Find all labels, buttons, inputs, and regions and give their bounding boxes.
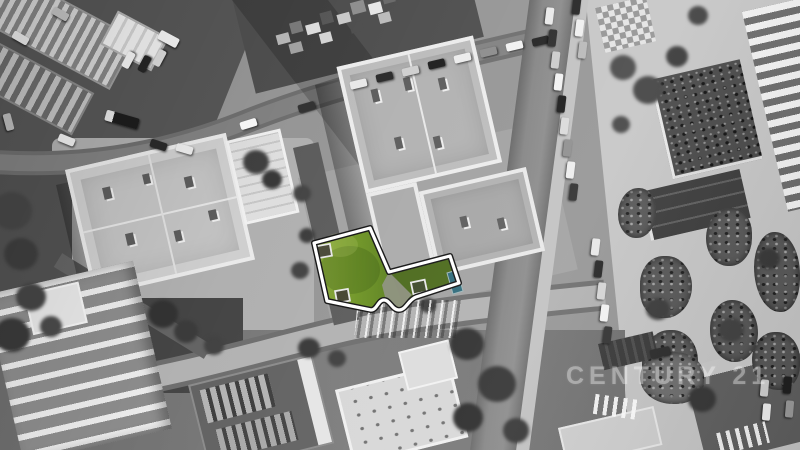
aerial-photo: CENTURY 21 (0, 0, 800, 450)
roof-vent (497, 217, 506, 229)
tree (16, 283, 46, 311)
roof-ridge-line (148, 155, 177, 274)
roof-vent (433, 136, 443, 149)
tree (293, 185, 311, 202)
tree (40, 316, 62, 337)
tree (612, 116, 630, 133)
roof-vent (184, 176, 194, 189)
roof-vent (142, 173, 151, 184)
roof-vent (394, 136, 404, 149)
tree (328, 350, 346, 367)
tree (453, 403, 483, 432)
tree (503, 418, 529, 443)
tree (688, 6, 708, 25)
tree (610, 55, 636, 80)
tree (204, 336, 224, 355)
roof-vent (102, 186, 112, 199)
tree (262, 170, 282, 189)
tree (243, 150, 269, 174)
roof-vent (403, 77, 413, 91)
highlighted-plot (295, 215, 480, 320)
parked-car (785, 400, 794, 418)
tree (633, 76, 663, 104)
tree (148, 300, 178, 328)
tree (718, 318, 744, 342)
tree (646, 298, 670, 320)
tree (666, 46, 688, 67)
roof-vent (208, 209, 218, 221)
roof-vent (438, 77, 448, 90)
parked-car (762, 403, 771, 421)
garden-bed (706, 208, 752, 266)
roof-vent (125, 232, 135, 245)
garden-bed (618, 188, 656, 238)
tree (758, 248, 780, 269)
watermark-text: CENTURY 21 (566, 362, 800, 391)
solar-panel-array (200, 373, 276, 423)
tree (478, 366, 516, 402)
tree (298, 338, 320, 358)
roof-vent (174, 230, 183, 242)
tree (4, 238, 38, 270)
roof-vent (371, 88, 381, 102)
tree (174, 320, 198, 343)
